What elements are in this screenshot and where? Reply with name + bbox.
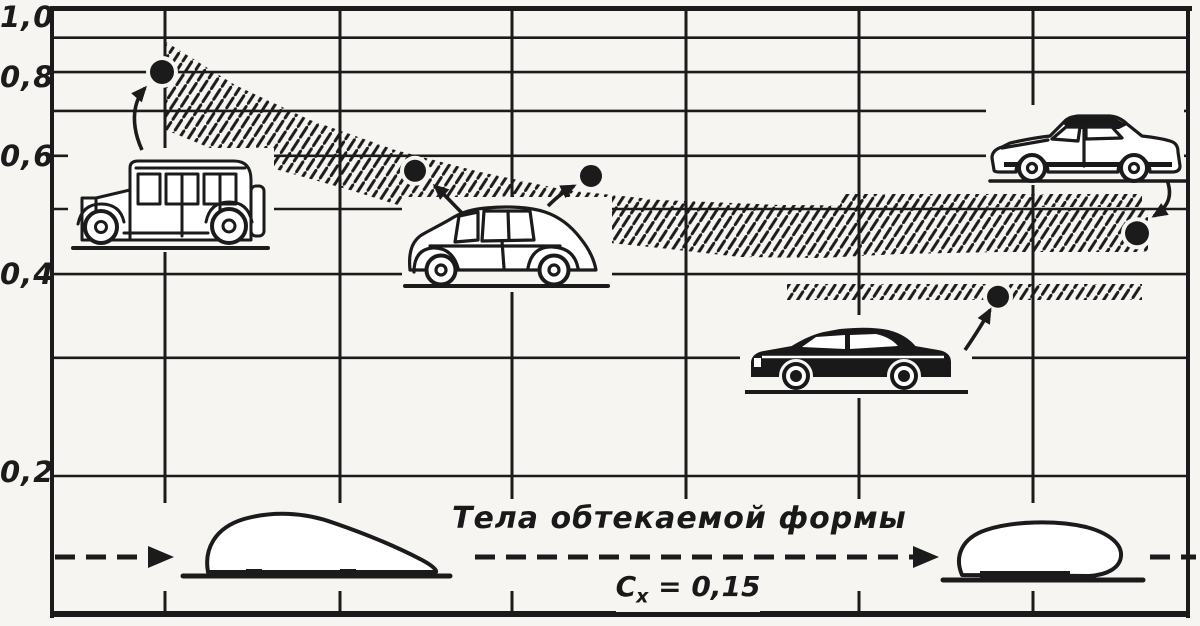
car1-front-hub bbox=[96, 222, 107, 233]
y-tick-label-1.0: 1,0 bbox=[0, 0, 48, 34]
car4-rear-hub bbox=[1130, 164, 1139, 173]
car1-trunk bbox=[251, 186, 264, 236]
teardrop-right-sill bbox=[980, 571, 1070, 578]
data-point-3 bbox=[580, 165, 602, 187]
data-point-1 bbox=[150, 60, 174, 84]
streamlined-bodies-caption: Тела обтекаемой формы bbox=[452, 501, 898, 541]
plot-border-right bbox=[1186, 6, 1190, 618]
teardrop-right-body bbox=[959, 522, 1121, 576]
car1-rear-hub bbox=[223, 220, 235, 232]
cx-value-caption: Cх = 0,15 bbox=[612, 570, 764, 610]
car3-headlamp bbox=[754, 358, 761, 367]
plot-border-top bbox=[50, 6, 1192, 11]
drag-coefficient-evolution-figure: 1,0 0,8 0,6 0,4 0,2 Тела обтекаемой форм… bbox=[0, 0, 1200, 626]
cx-subscript: х bbox=[636, 586, 648, 608]
y-tick-label-0.8: 0,8 bbox=[0, 60, 48, 94]
y-tick-label-0.2: 0,2 bbox=[0, 455, 48, 489]
car2-door-line bbox=[502, 241, 504, 268]
car2-window-mullion bbox=[508, 211, 509, 240]
data-point-4 bbox=[987, 286, 1009, 308]
car2-front-hub bbox=[436, 265, 446, 275]
hatched-low-cx-strip bbox=[787, 284, 1142, 300]
data-point-2 bbox=[404, 160, 426, 182]
car4-front-hub bbox=[1028, 164, 1037, 173]
hatched-band-top-cap bbox=[840, 194, 1142, 207]
y-tick-label-0.6: 0,6 bbox=[0, 139, 48, 173]
car2-rear-hub bbox=[549, 265, 559, 275]
cx-symbol: C bbox=[616, 570, 637, 603]
plot-border-left bbox=[50, 6, 54, 618]
car2-windshield bbox=[455, 212, 478, 242]
data-point-5 bbox=[1125, 221, 1149, 245]
cx-equals-value: = 0,15 bbox=[658, 570, 760, 603]
car1-windshield bbox=[138, 174, 160, 204]
pointer-arrow-5 bbox=[1154, 180, 1169, 216]
pointer-arrow-1 bbox=[134, 88, 145, 150]
y-tick-label-0.4: 0,4 bbox=[0, 257, 48, 291]
